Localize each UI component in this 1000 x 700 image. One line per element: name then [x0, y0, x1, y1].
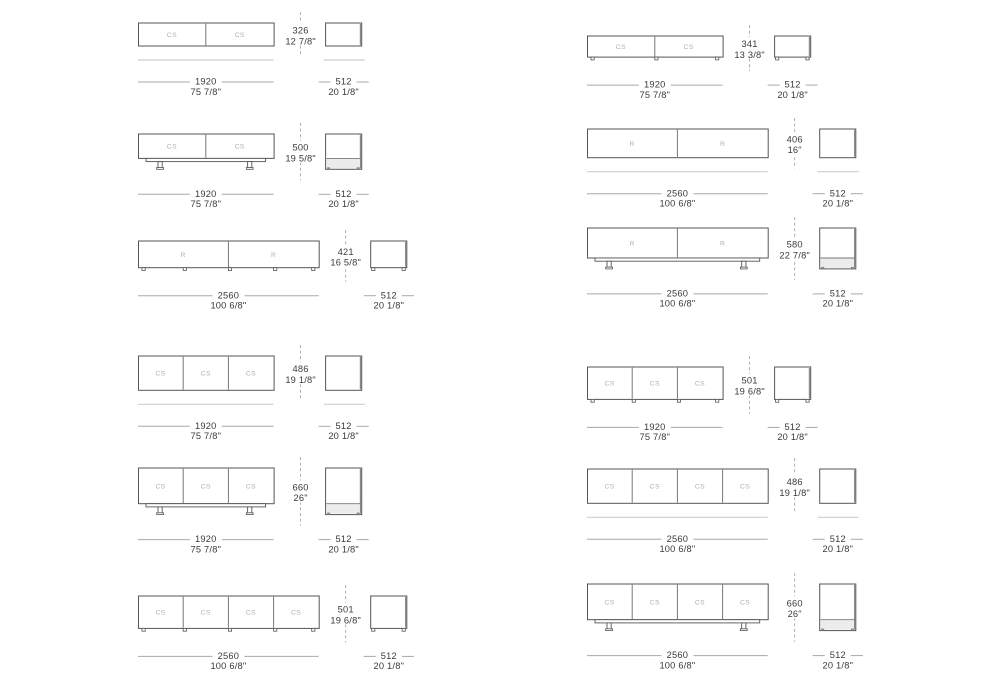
compartment-label: CS — [155, 483, 165, 490]
svg-text:2560: 2560 — [667, 188, 688, 198]
foot — [183, 268, 186, 271]
svg-text:19 6/8": 19 6/8" — [330, 616, 361, 626]
svg-text:512: 512 — [381, 290, 397, 300]
height-dimension: 501 19 6/8" — [730, 356, 770, 413]
drawing-right-5: CSCSCSCS 2560 100 6/8" 512 20 1/8" 486 1… — [587, 457, 870, 558]
svg-text:20 1/8": 20 1/8" — [328, 431, 359, 441]
side-view — [820, 228, 856, 269]
svg-text:1920: 1920 — [644, 80, 665, 90]
svg-text:100 6/8": 100 6/8" — [210, 661, 246, 671]
drawing-left-4: CSCSCS 1920 75 7/8" 512 20 1/8" 486 19 1… — [138, 344, 376, 445]
front-view: CSCSCSCS — [588, 584, 769, 631]
foot — [716, 57, 719, 60]
foot — [677, 399, 680, 402]
front-view: RR — [139, 241, 320, 271]
foot — [142, 628, 145, 631]
technical-drawing: RR 2560 100 6/8" 512 20 1/8" 406 16" — [587, 117, 870, 212]
width-dimension: 1920 75 7/8" — [138, 534, 274, 554]
width-dimension: 1920 75 7/8" — [138, 77, 274, 97]
foot — [357, 167, 360, 169]
depth-dimension-inner: 512 20 1/8" — [768, 80, 818, 100]
plinth — [146, 158, 266, 161]
svg-text:501: 501 — [742, 376, 758, 386]
technical-drawing: RR 2560 100 6/8" 512 20 1/8" 580 22 7/8" — [587, 216, 870, 312]
depth-dimension: 512 20 1/8" — [813, 289, 863, 309]
side-view — [775, 367, 811, 402]
leg — [740, 261, 747, 269]
depth-dimension: 512 20 1/8" — [319, 534, 369, 554]
svg-text:486: 486 — [293, 364, 309, 374]
height-dimension: 580 22 7/8" — [775, 217, 815, 280]
svg-text:19 1/8": 19 1/8" — [779, 488, 810, 498]
foot — [806, 57, 809, 60]
svg-text:2560: 2560 — [218, 290, 239, 300]
compartment-label: CS — [201, 483, 211, 490]
drawing-right-6: CSCSCSCS 2560 100 6/8" 512 20 1/8" 660 2… — [587, 572, 870, 674]
foot — [327, 167, 330, 169]
foot — [851, 267, 854, 269]
side-view — [326, 468, 362, 515]
front-view: CSCSCSCS — [139, 596, 320, 631]
side-view — [371, 596, 407, 631]
svg-text:1920: 1920 — [644, 422, 665, 432]
foot — [274, 268, 277, 271]
svg-text:12 7/8": 12 7/8" — [285, 36, 316, 46]
svg-text:20 1/8": 20 1/8" — [823, 544, 854, 554]
depth-dimension: 512 20 1/8" — [319, 189, 369, 209]
svg-text:2560: 2560 — [667, 650, 688, 660]
compartment-label: R — [271, 252, 276, 259]
svg-text:75 7/8": 75 7/8" — [191, 544, 222, 554]
drawing-left-2: CSCS 1920 75 7/8" 512 20 1/8" 500 19 5/8… — [138, 122, 376, 213]
svg-text:660: 660 — [293, 482, 309, 492]
svg-text:75 7/8": 75 7/8" — [640, 90, 671, 100]
foot — [357, 513, 360, 515]
svg-text:1920: 1920 — [195, 421, 216, 431]
foot — [591, 399, 594, 402]
depth-dimension: 512 20 1/8" — [364, 290, 414, 310]
drawing-left-3: RR 2560 100 6/8" 512 20 1/8" 421 16 5/8" — [138, 229, 421, 314]
svg-text:19 5/8": 19 5/8" — [285, 154, 316, 164]
spec-sheet: CSCS 1920 75 7/8" 512 20 1/8" 326 12 7/8… — [0, 0, 1000, 700]
svg-text:100 6/8": 100 6/8" — [210, 301, 246, 311]
depth-dimension: 512 20 1/8" — [319, 77, 369, 97]
plinth — [595, 258, 760, 261]
compartment-label: CS — [235, 32, 245, 39]
compartment-label: CS — [167, 32, 177, 39]
svg-text:341: 341 — [742, 39, 758, 49]
front-view: RR — [588, 228, 769, 269]
side-view — [818, 129, 859, 172]
depth-dimension: 512 20 1/8" — [768, 422, 818, 442]
width-dimension: 1920 75 7/8" — [138, 189, 274, 209]
svg-text:75 7/8": 75 7/8" — [191, 199, 222, 209]
width-dimension: 2560 100 6/8" — [138, 651, 319, 671]
svg-text:512: 512 — [830, 650, 846, 660]
technical-drawing: CSCSCS 1920 75 7/8" 512 20 1/8" 660 26" — [138, 456, 376, 558]
foot — [228, 628, 231, 631]
foot — [402, 628, 405, 631]
side-view — [371, 241, 407, 271]
svg-text:13 3/8": 13 3/8" — [734, 50, 765, 60]
svg-text:500: 500 — [293, 143, 309, 153]
base-band — [327, 504, 360, 514]
depth-dimension: 512 20 1/8" — [319, 421, 369, 441]
compartment-label: CS — [616, 44, 626, 51]
compartment-label: CS — [246, 610, 256, 617]
height-dimension: 326 12 7/8" — [281, 12, 321, 57]
svg-text:512: 512 — [336, 421, 352, 431]
svg-text:16 5/8": 16 5/8" — [330, 258, 361, 268]
svg-text:512: 512 — [381, 651, 397, 661]
foot — [806, 399, 809, 402]
compartment-label: CS — [155, 371, 165, 378]
svg-text:22 7/8": 22 7/8" — [779, 250, 810, 260]
foot — [183, 628, 186, 631]
side-view — [820, 584, 856, 631]
svg-text:326: 326 — [293, 26, 309, 36]
width-dimension: 1920 75 7/8" — [587, 422, 723, 442]
drawing-left-5: CSCSCS 1920 75 7/8" 512 20 1/8" 660 26" — [138, 456, 376, 558]
depth-dimension: 512 20 1/8" — [364, 651, 414, 671]
svg-text:512: 512 — [336, 189, 352, 199]
compartment-label: CS — [155, 610, 165, 617]
depth-dimension: 512 20 1/8" — [813, 534, 863, 554]
drawing-right-3: RR 2560 100 6/8" 512 20 1/8" 580 22 7/8" — [587, 216, 870, 312]
depth-dimension-inner: 512 20 1/8" — [319, 189, 369, 209]
svg-text:512: 512 — [830, 534, 846, 544]
foot — [821, 267, 824, 269]
svg-text:20 1/8": 20 1/8" — [777, 432, 808, 442]
compartment-label: CS — [695, 599, 705, 606]
compartment-label: R — [630, 241, 635, 248]
depth-dimension-inner: 512 20 1/8" — [813, 650, 863, 670]
height-dimension: 406 16" — [775, 118, 815, 169]
compartment-label: CS — [650, 599, 660, 606]
width-dimension: 1920 75 7/8" — [138, 421, 274, 441]
depth-dimension-inner: 512 20 1/8" — [813, 534, 863, 554]
svg-text:75 7/8": 75 7/8" — [191, 431, 222, 441]
compartment-label: CS — [740, 484, 750, 491]
leg — [246, 162, 253, 170]
technical-drawing: CSCS 1920 75 7/8" 512 20 1/8" 341 13 3/8… — [587, 24, 825, 104]
compartment-label: R — [720, 141, 725, 148]
foot — [228, 268, 231, 271]
depth-dimension-inner: 512 20 1/8" — [319, 534, 369, 554]
leg — [740, 623, 747, 631]
drawing-right-1: CSCS 1920 75 7/8" 512 20 1/8" 341 13 3/8… — [587, 24, 825, 104]
side-view — [324, 23, 365, 60]
technical-drawing: CSCSCSCS 2560 100 6/8" 512 20 1/8" 660 2… — [587, 572, 870, 674]
svg-text:75 7/8": 75 7/8" — [640, 432, 671, 442]
width-dimension: 1920 75 7/8" — [587, 80, 723, 100]
foot — [716, 399, 719, 402]
plinth — [146, 504, 266, 507]
svg-text:501: 501 — [338, 605, 354, 615]
technical-drawing: CSCSCS 1920 75 7/8" 512 20 1/8" 486 19 1… — [138, 344, 376, 445]
leg — [157, 162, 164, 170]
svg-text:20 1/8": 20 1/8" — [823, 660, 854, 670]
base-band — [821, 258, 854, 268]
compartment-label: CS — [246, 483, 256, 490]
technical-drawing: CSCSCSCS 2560 100 6/8" 512 20 1/8" 486 1… — [587, 457, 870, 558]
plinth — [595, 620, 760, 623]
leg — [246, 507, 253, 515]
svg-text:1920: 1920 — [195, 189, 216, 199]
svg-text:20 1/8": 20 1/8" — [374, 301, 405, 311]
compartment-label: CS — [291, 610, 301, 617]
leg — [157, 507, 164, 515]
svg-text:20 1/8": 20 1/8" — [328, 199, 359, 209]
front-view: CSCSCS — [138, 356, 274, 404]
leg — [606, 261, 613, 269]
depth-dimension: 512 20 1/8" — [813, 650, 863, 670]
front-view: CSCS — [139, 134, 275, 169]
foot — [632, 399, 635, 402]
width-dimension: 2560 100 6/8" — [587, 534, 768, 554]
depth-dimension: 512 20 1/8" — [813, 188, 863, 208]
svg-text:19 1/8": 19 1/8" — [285, 375, 316, 385]
base-band — [327, 158, 360, 168]
svg-text:580: 580 — [787, 240, 803, 250]
drawing-right-2: RR 2560 100 6/8" 512 20 1/8" 406 16" — [587, 117, 870, 212]
depth-dimension-inner: 512 20 1/8" — [319, 421, 369, 441]
technical-drawing: CSCS 1920 75 7/8" 512 20 1/8" 500 19 5/8… — [138, 122, 376, 213]
svg-text:1920: 1920 — [195, 534, 216, 544]
depth-dimension-inner: 512 20 1/8" — [768, 422, 818, 442]
compartment-label: CS — [246, 371, 256, 378]
compartment-label: CS — [604, 381, 614, 388]
svg-text:406: 406 — [787, 134, 803, 144]
technical-drawing: CSCS 1920 75 7/8" 512 20 1/8" 326 12 7/8… — [138, 11, 376, 101]
svg-text:2560: 2560 — [667, 289, 688, 299]
svg-text:75 7/8": 75 7/8" — [191, 87, 222, 97]
drawing-left-1: CSCS 1920 75 7/8" 512 20 1/8" 326 12 7/8… — [138, 11, 376, 101]
foot — [591, 57, 594, 60]
technical-drawing: RR 2560 100 6/8" 512 20 1/8" 421 16 5/8" — [138, 229, 421, 314]
foot — [402, 268, 405, 271]
compartment-label: CS — [650, 484, 660, 491]
depth-dimension-inner: 512 20 1/8" — [364, 651, 414, 671]
side-view — [775, 36, 811, 60]
svg-text:20 1/8": 20 1/8" — [823, 299, 854, 309]
foot — [655, 57, 658, 60]
foot — [142, 268, 145, 271]
side-view — [324, 356, 365, 404]
width-dimension: 2560 100 6/8" — [587, 188, 768, 208]
foot — [821, 629, 824, 631]
depth-dimension: 512 20 1/8" — [768, 80, 818, 100]
svg-text:100 6/8": 100 6/8" — [659, 199, 695, 209]
svg-text:2560: 2560 — [667, 534, 688, 544]
height-dimension: 486 19 1/8" — [775, 458, 815, 514]
compartment-label: CS — [604, 484, 614, 491]
foot — [372, 628, 375, 631]
front-view: CSCSCS — [588, 367, 724, 402]
leg — [606, 623, 613, 631]
svg-text:512: 512 — [336, 77, 352, 87]
svg-text:20 1/8": 20 1/8" — [328, 87, 359, 97]
compartment-label: CS — [167, 144, 177, 151]
svg-text:26": 26" — [788, 609, 802, 619]
depth-dimension-inner: 512 20 1/8" — [319, 77, 369, 97]
svg-text:100 6/8": 100 6/8" — [659, 299, 695, 309]
foot — [372, 268, 375, 271]
compartment-label: R — [720, 241, 725, 248]
width-dimension: 2560 100 6/8" — [138, 290, 319, 310]
compartment-label: R — [630, 141, 635, 148]
svg-text:512: 512 — [830, 188, 846, 198]
svg-text:20 1/8": 20 1/8" — [823, 199, 854, 209]
technical-drawing: CSCSCS 1920 75 7/8" 512 20 1/8" 501 19 6… — [587, 355, 825, 446]
svg-text:1920: 1920 — [195, 77, 216, 87]
side-view — [818, 469, 859, 517]
side-view — [326, 134, 362, 169]
svg-text:20 1/8": 20 1/8" — [777, 90, 808, 100]
width-dimension: 2560 100 6/8" — [587, 289, 768, 309]
svg-text:26": 26" — [293, 493, 307, 503]
compartment-label: CS — [201, 371, 211, 378]
foot — [776, 399, 779, 402]
height-dimension: 660 26" — [775, 573, 815, 642]
depth-dimension-inner: 512 20 1/8" — [364, 290, 414, 310]
svg-text:512: 512 — [830, 289, 846, 299]
compartment-label: CS — [740, 599, 750, 606]
svg-text:660: 660 — [787, 598, 803, 608]
front-view: RR — [587, 129, 768, 172]
svg-text:20 1/8": 20 1/8" — [374, 661, 405, 671]
height-dimension: 421 16 5/8" — [326, 230, 366, 282]
foot — [327, 513, 330, 515]
height-dimension: 486 19 1/8" — [281, 345, 321, 401]
svg-text:512: 512 — [336, 534, 352, 544]
drawing-right-4: CSCSCS 1920 75 7/8" 512 20 1/8" 501 19 6… — [587, 355, 825, 446]
depth-dimension-inner: 512 20 1/8" — [813, 289, 863, 309]
height-dimension: 660 26" — [281, 457, 321, 526]
height-dimension: 500 19 5/8" — [281, 123, 321, 180]
base-band — [821, 620, 854, 630]
svg-text:20 1/8": 20 1/8" — [328, 544, 359, 554]
front-view: CSCSCS — [139, 468, 275, 515]
front-view: CSCSCSCS — [587, 469, 768, 517]
depth-dimension-inner: 512 20 1/8" — [813, 188, 863, 208]
svg-text:486: 486 — [787, 477, 803, 487]
compartment-label: CS — [695, 484, 705, 491]
compartment-label: CS — [650, 381, 660, 388]
svg-text:100 6/8": 100 6/8" — [659, 544, 695, 554]
foot — [312, 628, 315, 631]
height-dimension: 341 13 3/8" — [730, 25, 770, 71]
foot — [776, 57, 779, 60]
front-view: CSCS — [588, 36, 724, 60]
drawing-left-6: CSCSCSCS 2560 100 6/8" 512 20 1/8" 501 1… — [138, 584, 421, 675]
svg-text:16": 16" — [788, 145, 802, 155]
compartment-label: CS — [695, 381, 705, 388]
front-view: CSCS — [138, 23, 274, 60]
height-dimension: 501 19 6/8" — [326, 585, 366, 642]
svg-text:100 6/8": 100 6/8" — [659, 660, 695, 670]
foot — [851, 629, 854, 631]
foot — [312, 268, 315, 271]
foot — [274, 628, 277, 631]
width-dimension: 2560 100 6/8" — [587, 650, 768, 670]
svg-text:421: 421 — [338, 247, 354, 257]
compartment-label: CS — [684, 44, 694, 51]
compartment-label: CS — [235, 144, 245, 151]
svg-text:512: 512 — [785, 422, 801, 432]
svg-text:2560: 2560 — [218, 651, 239, 661]
svg-text:512: 512 — [785, 80, 801, 90]
svg-text:19 6/8": 19 6/8" — [734, 387, 765, 397]
compartment-label: CS — [604, 599, 614, 606]
compartment-label: CS — [201, 610, 211, 617]
compartment-label: R — [181, 252, 186, 259]
technical-drawing: CSCSCSCS 2560 100 6/8" 512 20 1/8" 501 1… — [138, 584, 421, 675]
